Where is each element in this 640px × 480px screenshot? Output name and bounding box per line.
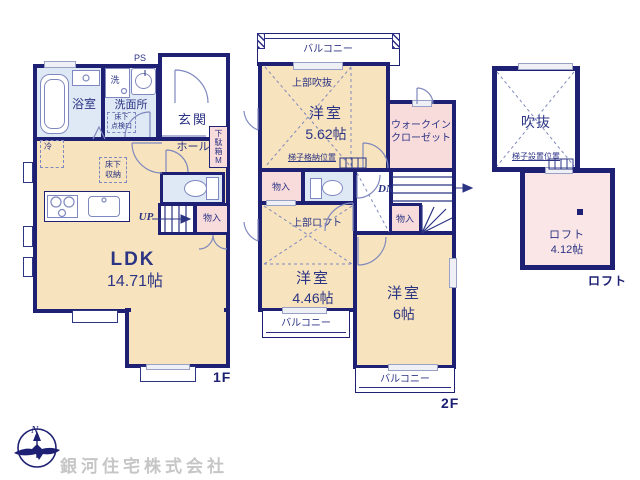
label-ldk-size: 14.71帖 [85, 272, 185, 291]
window-left-1 [23, 162, 33, 183]
label-closet-2f-a: 物入 [265, 182, 297, 193]
tag-2f: 2F [441, 395, 459, 411]
label-underfloor-storage-1: 床下 [99, 160, 127, 170]
label-ldk: LDK [93, 249, 173, 272]
label-closet-2f-b: 物入 [389, 214, 421, 225]
balcony-top-rail [261, 38, 396, 39]
compass-icon: N [10, 420, 64, 474]
label-void: 吹抜 [506, 114, 566, 131]
bath-counter-icon [72, 70, 100, 86]
label-hall: ホール [168, 141, 218, 154]
window-ldk-south [72, 310, 118, 323]
door-wic-slide [412, 100, 432, 107]
label-bedroom2: 洋室 [283, 270, 343, 288]
stove-icon [47, 195, 78, 218]
label-underfloor-storage-2: 収納 [99, 170, 127, 180]
stairs-up-block [158, 203, 196, 235]
label-washroom: 洗面所 [105, 99, 157, 112]
label-bedroom3: 洋室 [374, 285, 434, 303]
label-wic-2: クローゼット [391, 133, 451, 145]
window-left-3 [23, 257, 33, 277]
label-upper-void: 上部吹抜 [282, 78, 342, 90]
pillar-marker [577, 209, 583, 215]
label-underfloor-hatch-1: 床下 [107, 114, 136, 122]
loft-ladder-opening [545, 167, 573, 174]
label-balcony-top: バルコニー [288, 44, 368, 56]
balcony-post-right [392, 33, 400, 49]
sink-bowl [135, 73, 152, 89]
label-bedroom1-size: 5.62帖 [296, 126, 356, 143]
window-void [518, 63, 573, 70]
label-loft: ロフト [537, 229, 597, 242]
company-name: 銀河住宅株式会社 [60, 452, 228, 477]
label-balcony-left: バルコニー [266, 318, 346, 330]
label-ladder-position: 梯子設置位置 [506, 152, 566, 162]
window-bedroom2-south [282, 307, 327, 314]
label-ps: PS [131, 53, 149, 64]
tag-1f: 1F [213, 369, 231, 385]
label-underfloor-hatch-2: 点検口 [107, 123, 136, 131]
label-bedroom3-size: 6帖 [374, 306, 434, 323]
label-bedroom2-size: 4.46帖 [283, 290, 343, 307]
shoe-box-size-label: M [215, 156, 222, 165]
label-loft-size: 4.12帖 [537, 244, 597, 257]
label-bedroom1: 洋室 [296, 105, 356, 123]
balcony-post-left [257, 33, 265, 49]
label-fridge: 冷 [40, 142, 56, 152]
window-bedroom1 [293, 62, 343, 70]
tag-loft: ロフト [588, 272, 627, 289]
toilet-1f-icon [184, 180, 207, 197]
label-balcony-bottom: バルコニー [365, 374, 445, 386]
toilet-2f-icon [322, 180, 343, 196]
window-bedroom3-south [388, 364, 438, 371]
label-washer: 洗 [108, 75, 122, 86]
balcony-bottom-rail [359, 387, 451, 388]
window-left-2 [23, 226, 33, 247]
floor-plan-page: 下駄箱 M 浴室 [0, 0, 640, 480]
window-bath [44, 61, 76, 68]
label-entrance: 玄関 [167, 112, 219, 128]
label-upper-loft: 上部ロフト [287, 218, 347, 230]
hall-2f [353, 168, 393, 235]
label-wic-1: ウォークイン [391, 120, 451, 132]
balcony-left-rail [266, 332, 346, 333]
kitchen-sink-icon [88, 196, 120, 217]
window-bedroom3-east [449, 258, 457, 288]
ldk-opening [131, 306, 224, 315]
label-closet-1f: 物入 [196, 213, 228, 224]
window-ldk-bay-glass [146, 364, 190, 370]
label-bath: 浴室 [62, 97, 106, 111]
door-closet-a-slide [266, 200, 296, 206]
toilet-1f-tank [206, 177, 219, 200]
toilet-2f-tank [310, 178, 322, 199]
label-up: UP [136, 211, 156, 224]
room-ldk-lower [125, 308, 230, 368]
label-ladder-storage: 梯子格納位置 [282, 153, 342, 163]
compass-n-label: N [30, 424, 39, 436]
label-dn: DN [375, 183, 397, 196]
